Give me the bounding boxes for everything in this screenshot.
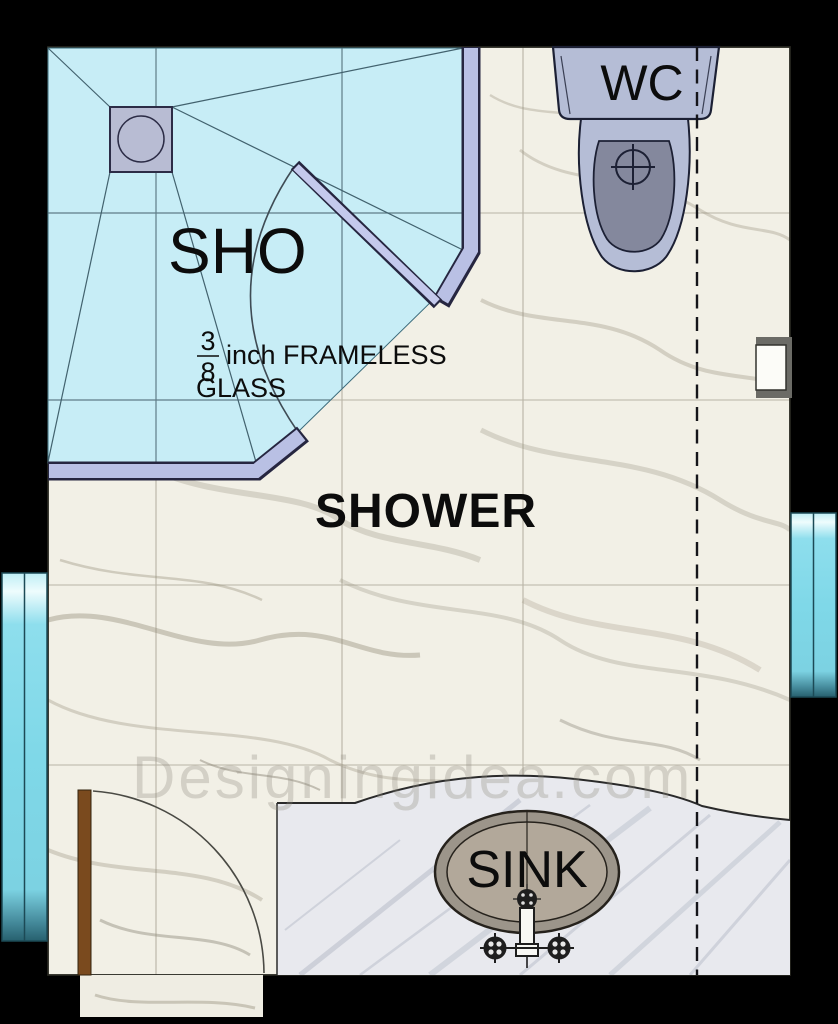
wall-niche-box [756,337,792,398]
entry-door-panel [78,790,91,975]
watermark: Designingidea.com [132,744,693,811]
floor-plan-svg: SHO 3 8 inch FRAMELESS GLASS SHOWER Desi… [0,0,838,1024]
door-threshold [80,975,263,1017]
room-label: SHOWER [315,485,537,538]
shower-drain [110,107,172,172]
glass-note-line1: inch FRAMELESS [226,340,447,370]
floor-plan-canvas: SHO 3 8 inch FRAMELESS GLASS SHOWER Desi… [0,0,838,1024]
glass-note-line2: GLASS [196,373,286,403]
window-right [791,513,836,697]
glass-fraction-numerator: 3 [200,326,215,356]
toilet-label: WC [600,55,683,111]
shower-pan-label: SHO [168,215,307,287]
window-left [2,573,47,941]
